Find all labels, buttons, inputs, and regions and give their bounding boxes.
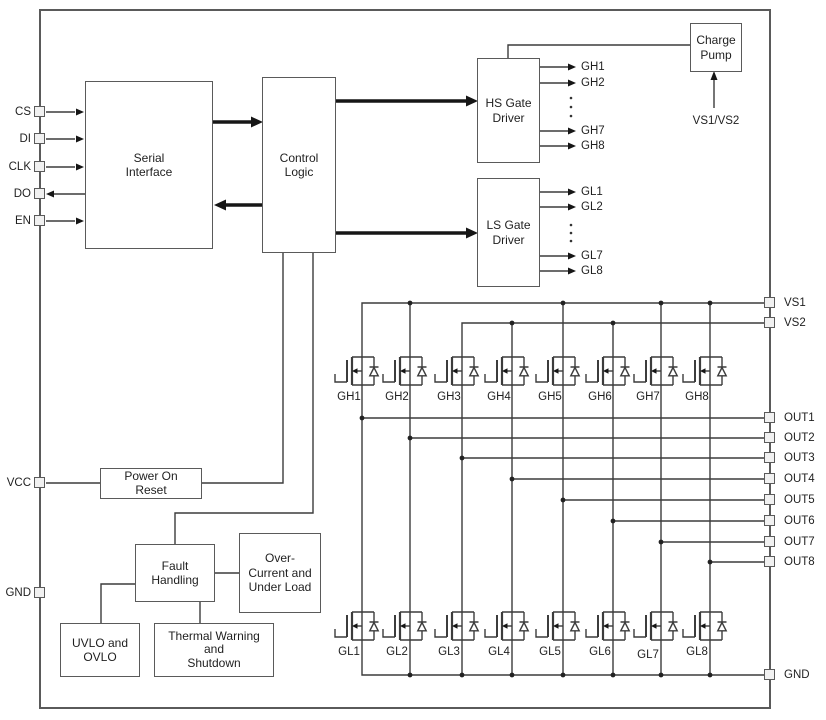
nmos-gh2-icon (383, 357, 427, 385)
pin-out7 (764, 536, 775, 547)
pin-label-vs2: VS2 (784, 316, 806, 330)
fet-label-gh8: GH8 (677, 390, 717, 404)
block-charge-pump: Charge Pump (690, 23, 742, 72)
pin-gnd-left (34, 587, 45, 598)
pin-vs1 (764, 297, 775, 308)
fet-label-gl7: GL7 (628, 648, 668, 662)
pin-out6 (764, 515, 775, 526)
block-label: Current and (248, 566, 311, 581)
fet-label-gh7: GH7 (628, 390, 668, 404)
block-label: HS Gate (485, 96, 531, 111)
pin-out2 (764, 432, 775, 443)
signal-label-gl7: GL7 (581, 249, 603, 263)
pin-out3 (764, 452, 775, 463)
nmos-gh5-icon (536, 357, 580, 385)
fet-label-gl5: GL5 (530, 645, 570, 659)
charge-pump-supply-label: VS1/VS2 (686, 114, 746, 128)
signal-label-gh8: GH8 (581, 139, 605, 153)
signal-label-gl1: GL1 (581, 185, 603, 199)
nmos-gh6-icon (586, 357, 630, 385)
pin-label-cs: CS (0, 105, 31, 119)
block-label: Pump (700, 48, 731, 63)
block-label: Thermal Warning (168, 630, 260, 644)
block-label: Control (280, 151, 319, 166)
signal-label-gh2: GH2 (581, 76, 605, 90)
nmos-gh8-icon (683, 357, 727, 385)
block-label: Fault (162, 559, 189, 574)
block-control-logic: Control Logic (262, 77, 336, 253)
block-label: Reset (135, 484, 166, 498)
block-over-current-under-load: Over- Current and Under Load (239, 533, 321, 613)
pin-label-vs1: VS1 (784, 296, 806, 310)
pin-label-do: DO (0, 187, 31, 201)
block-ls-gate-driver: LS Gate Driver (477, 178, 540, 287)
block-uvlo-ovlo: UVLO and OVLO (60, 623, 140, 677)
fet-label-gl8: GL8 (677, 645, 717, 659)
block-serial-interface: Serial Interface (85, 81, 213, 249)
block-label: OVLO (83, 650, 116, 665)
bus-arrowheads (214, 96, 478, 239)
nmos-gl2-icon (383, 612, 427, 640)
signal-label-gl8: GL8 (581, 264, 603, 278)
block-label: Under Load (249, 580, 312, 595)
fet-label-gh1: GH1 (329, 390, 369, 404)
block-thermal-warning-shutdown: Thermal Warning and Shutdown (154, 623, 274, 677)
block-label: Serial (134, 151, 165, 166)
signal-label-gh7: GH7 (581, 124, 605, 138)
block-label: Interface (126, 165, 173, 180)
ellipsis-dots (570, 97, 573, 243)
nmos-gh3-icon (435, 357, 479, 385)
block-label: UVLO and (72, 636, 128, 651)
block-hs-gate-driver: HS Gate Driver (477, 58, 540, 163)
pin-label-en: EN (0, 214, 31, 228)
pin-label-out3: OUT3 (784, 451, 815, 465)
bus-arrows (213, 101, 466, 233)
pin-do (34, 188, 45, 199)
pin-clk (34, 161, 45, 172)
pin-cs (34, 106, 45, 117)
fet-label-gh6: GH6 (580, 390, 620, 404)
nmos-gl8-icon (683, 612, 727, 640)
block-label: Driver (493, 233, 525, 248)
fet-label-gh3: GH3 (429, 390, 469, 404)
block-label: Charge (696, 33, 735, 48)
block-label: Driver (493, 111, 525, 126)
gate-driver-ic-block-diagram: Serial Interface Control Logic HS Gate D… (0, 0, 826, 720)
block-label: LS Gate (486, 218, 530, 233)
block-fault-handling: Fault Handling (135, 544, 215, 602)
pin-label-out6: OUT6 (784, 514, 815, 528)
nmos-gl6-icon (586, 612, 630, 640)
pin-label-clk: CLK (0, 160, 31, 174)
pin-out5 (764, 494, 775, 505)
block-label: Logic (285, 165, 314, 180)
nmos-gl7-icon (634, 612, 678, 640)
signal-label-gl2: GL2 (581, 200, 603, 214)
pin-label-out1: OUT1 (784, 411, 815, 425)
fet-label-gl1: GL1 (329, 645, 369, 659)
pin-label-out8: OUT8 (784, 555, 815, 569)
pin-label-di: DI (0, 132, 31, 146)
nmos-gl5-icon (536, 612, 580, 640)
pin-label-out2: OUT2 (784, 431, 815, 445)
nmos-gl4-icon (485, 612, 529, 640)
nmos-gh4-icon (485, 357, 529, 385)
fet-label-gl6: GL6 (580, 645, 620, 659)
pin-out1 (764, 412, 775, 423)
block-label: and (204, 643, 224, 657)
fet-label-gl4: GL4 (479, 645, 519, 659)
fet-label-gl3: GL3 (429, 645, 469, 659)
pin-en (34, 215, 45, 226)
pin-out4 (764, 473, 775, 484)
fet-label-gh2: GH2 (377, 390, 417, 404)
pin-label-vcc: VCC (0, 476, 31, 490)
nmos-gh7-icon (634, 357, 678, 385)
fet-label-gl2: GL2 (377, 645, 417, 659)
block-label: Shutdown (187, 657, 240, 671)
pin-di (34, 133, 45, 144)
pin-label-out5: OUT5 (784, 493, 815, 507)
pin-gnd-right (764, 669, 775, 680)
block-power-on-reset: Power On Reset (100, 468, 202, 499)
pin-vs2 (764, 317, 775, 328)
pin-label-out4: OUT4 (784, 472, 815, 486)
block-label: Over- (265, 551, 295, 566)
fet-label-gh5: GH5 (530, 390, 570, 404)
fet-label-gh4: GH4 (479, 390, 519, 404)
pin-out8 (764, 556, 775, 567)
nmos-gl1-icon (335, 612, 379, 640)
pin-label-gnd-left: GND (0, 586, 31, 600)
nmos-gl3-icon (435, 612, 479, 640)
pin-label-gnd-right: GND (784, 668, 810, 682)
pin-label-out7: OUT7 (784, 535, 815, 549)
nmos-gh1-icon (335, 357, 379, 385)
pin-vcc (34, 477, 45, 488)
block-label: Power On (124, 470, 177, 484)
signal-label-gh1: GH1 (581, 60, 605, 74)
block-label: Handling (151, 573, 198, 588)
